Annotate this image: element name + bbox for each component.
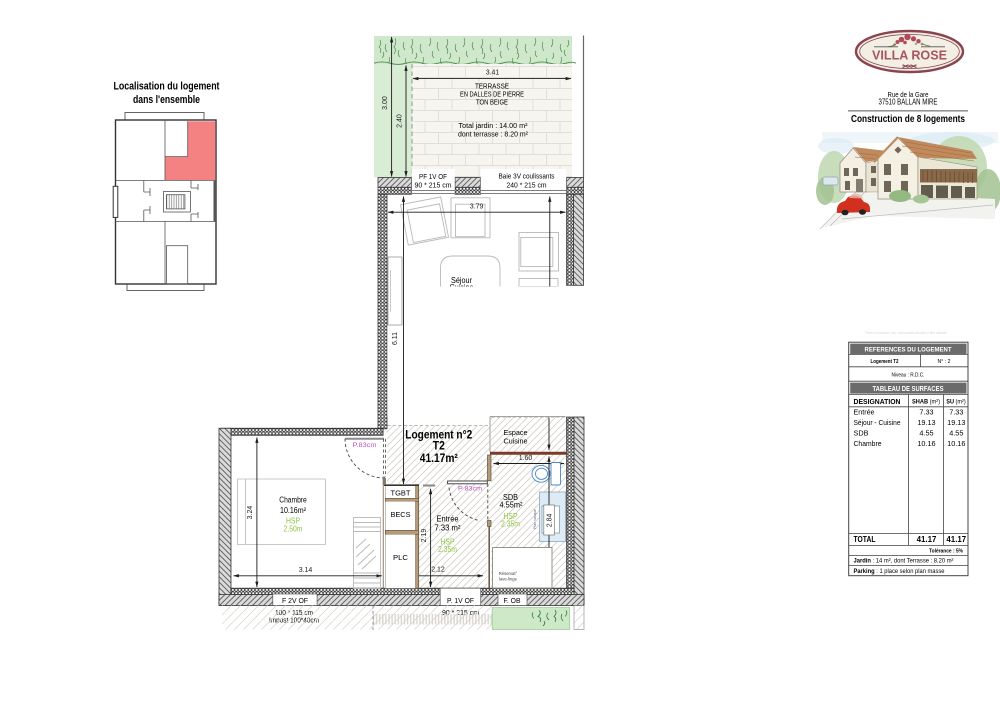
svg-text:1.60: 1.60 (519, 455, 533, 462)
svg-text:3.79: 3.79 (470, 203, 484, 210)
svg-text:Niveau : R.D.C.: Niveau : R.D.C. (892, 372, 925, 378)
svg-text:6.11: 6.11 (392, 332, 399, 345)
svg-text:DESIGNATION: DESIGNATION (854, 397, 901, 406)
svg-text:2.35m: 2.35m (501, 520, 520, 529)
svg-text:3.41: 3.41 (486, 70, 500, 77)
svg-text:2.40: 2.40 (397, 114, 404, 128)
svg-text:4.55m²: 4.55m² (500, 501, 523, 510)
svg-text:19.13: 19.13 (947, 418, 965, 427)
svg-text:TON BEIGE: TON BEIGE (476, 98, 508, 107)
svg-text:F 2V OF: F 2V OF (282, 598, 308, 605)
svg-text:Chambre: Chambre (854, 439, 882, 448)
svg-text:Tolérance : 5%: Tolérance : 5% (929, 549, 964, 555)
svg-text:10.16: 10.16 (917, 439, 935, 448)
svg-text:N° : 2: N° : 2 (938, 359, 951, 365)
svg-text:Localisation du logement: Localisation du logement (114, 81, 220, 93)
svg-text:41.17: 41.17 (946, 535, 966, 544)
svg-text:Parking : 1 place selon plan m: Parking : 1 place selon plan masse (854, 568, 945, 575)
svg-text:4.55: 4.55 (949, 428, 963, 437)
svg-text:PLC: PLC (393, 553, 409, 562)
svg-text:7.33: 7.33 (919, 408, 933, 417)
svg-text:Total jardin : 14.00 m²: Total jardin : 14.00 m² (459, 123, 529, 130)
svg-text:Cuisine: Cuisine (504, 437, 528, 446)
svg-text:TGBT: TGBT (391, 488, 411, 497)
svg-text:Jardin : 14 m², dont Terrasse: Jardin : 14 m², dont Terrasse : 8.20 m² (854, 558, 955, 565)
svg-text:90 * 215 cm: 90 * 215 cm (415, 183, 452, 190)
svg-text:PF 1V OF: PF 1V OF (419, 174, 447, 181)
svg-text:2.84: 2.84 (547, 513, 554, 527)
svg-text:2.50m: 2.50m (284, 525, 303, 534)
svg-text:Construction de 8 logements: Construction de 8 logements (851, 114, 965, 125)
svg-text:4.55: 4.55 (919, 428, 933, 437)
svg-text:7.33 m²: 7.33 m² (435, 524, 461, 533)
svg-text:41.17: 41.17 (917, 535, 937, 544)
svg-text:lave-linge: lave-linge (499, 577, 518, 582)
svg-text:Plan vasque: Plan vasque (533, 509, 537, 529)
svg-text:F. OB: F. OB (504, 598, 521, 605)
svg-text:dont terrasse : 8.20 m²: dont terrasse : 8.20 m² (458, 132, 529, 139)
svg-text:41.17m²: 41.17m² (420, 451, 458, 465)
svg-text:REFERENCES DU LOGEMENT: REFERENCES DU LOGEMENT (865, 347, 953, 354)
svg-text:3.00: 3.00 (382, 96, 389, 110)
svg-text:Plans et surfaces non contract: Plans et surfaces non contractuels donné… (865, 331, 948, 335)
svg-text:10.16: 10.16 (947, 439, 965, 448)
svg-text:3.14: 3.14 (299, 567, 313, 574)
svg-text:2.19: 2.19 (421, 529, 428, 543)
svg-text:Logement T2: Logement T2 (871, 359, 900, 365)
svg-text:P.83cm: P.83cm (353, 442, 377, 449)
svg-text:10.16m²: 10.16m² (280, 506, 306, 515)
svg-text:P 83cm: P 83cm (458, 485, 482, 492)
svg-text:19.13: 19.13 (917, 418, 935, 427)
svg-text:TABLEAU DE SURFACES: TABLEAU DE SURFACES (873, 384, 944, 393)
svg-text:SDB: SDB (854, 428, 869, 437)
svg-text:BECS: BECS (391, 510, 411, 519)
svg-text:SHAB (m²): SHAB (m²) (912, 399, 940, 406)
svg-text:VILLA ROSE: VILLA ROSE (872, 48, 947, 62)
svg-text:2.12: 2.12 (431, 566, 445, 573)
svg-text:2.35m: 2.35m (438, 545, 457, 554)
svg-text:Séjour - Cuisine: Séjour - Cuisine (854, 418, 901, 427)
svg-text:TOTAL: TOTAL (854, 535, 876, 544)
svg-text:7.33: 7.33 (949, 408, 963, 417)
svg-text:Chambre: Chambre (279, 496, 307, 505)
svg-text:Entrée: Entrée (854, 408, 875, 417)
svg-text:dans l'ensemble: dans l'ensemble (133, 94, 200, 106)
svg-text:P. 1V OF: P. 1V OF (447, 598, 474, 605)
svg-text:240 * 215 cm: 240 * 215 cm (507, 183, 547, 190)
svg-text:Baie 3V coulissants: Baie 3V coulissants (499, 173, 555, 180)
svg-text:Réservat°: Réservat° (499, 571, 518, 576)
svg-text:SU (m²): SU (m²) (946, 399, 966, 406)
svg-text:Entrée: Entrée (437, 514, 460, 523)
svg-text:3.24: 3.24 (247, 506, 254, 520)
svg-text:37510 BALLAN MIRE: 37510 BALLAN MIRE (879, 98, 938, 107)
